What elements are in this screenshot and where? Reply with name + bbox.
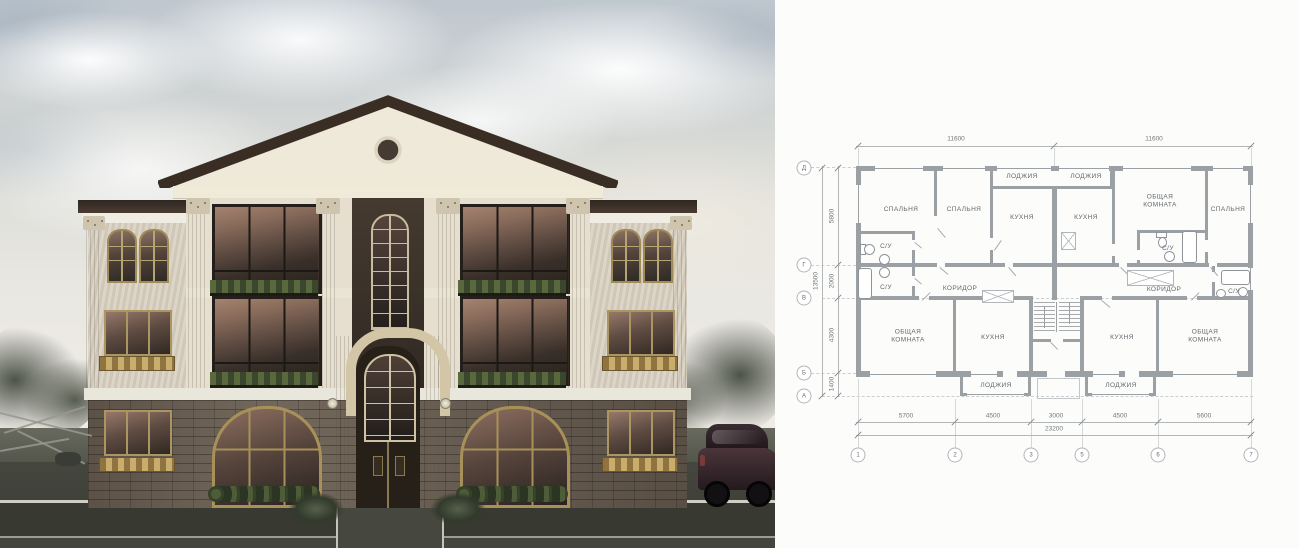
dim-label: 4500 xyxy=(986,413,1000,420)
grid-bubble-col-6: 6 xyxy=(1151,448,1166,463)
bathtub xyxy=(1182,231,1197,263)
door-glass xyxy=(395,456,405,476)
window-line xyxy=(1092,394,1149,395)
grid-bubble-row-b: Б xyxy=(797,366,812,381)
dim-label: 5800 xyxy=(829,209,836,223)
pilaster-capital xyxy=(83,216,105,230)
door-leaf xyxy=(914,278,922,285)
door-opening xyxy=(934,216,937,228)
extension-line xyxy=(1054,148,1055,166)
car-taillight xyxy=(700,455,705,466)
entrance-opening xyxy=(1047,371,1065,377)
door-leaf xyxy=(937,228,945,238)
stone-window xyxy=(104,410,172,456)
wall-segment xyxy=(1052,186,1057,300)
wall-segment xyxy=(1217,263,1253,267)
extension-line xyxy=(1251,148,1252,166)
window-line xyxy=(1173,374,1237,375)
dim-label: 1400 xyxy=(829,377,836,391)
wing-roof-right xyxy=(579,200,697,213)
room-label-kitchen: КУХНЯ xyxy=(1010,214,1034,222)
extension-line xyxy=(955,399,956,448)
dim-label: 11600 xyxy=(947,136,965,143)
bathtub xyxy=(858,268,872,299)
door-opening xyxy=(1205,240,1208,252)
window-line xyxy=(870,374,936,375)
pilaster-capital xyxy=(566,198,590,214)
room-label-loggia: ЛОДЖИЯ xyxy=(1105,382,1136,390)
wall-segment xyxy=(1057,263,1119,267)
door-leaf xyxy=(994,240,1002,250)
room-label-bathroom: С/У xyxy=(880,284,892,292)
grid-line-d xyxy=(811,167,856,168)
door-leaf xyxy=(1101,300,1110,308)
washbasin xyxy=(879,267,890,278)
bush xyxy=(430,492,486,526)
entrance-porch xyxy=(1037,378,1080,399)
room-label-living-room: ОБЩАЯ КОМНАТА xyxy=(1180,329,1230,346)
room-label-loggia: ЛОДЖИЯ xyxy=(1070,173,1101,181)
dimension-line xyxy=(822,166,823,397)
room-label-living-room: ОБЩАЯ КОМНАТА xyxy=(1135,194,1185,211)
grid-bubble-col-5: 5 xyxy=(1075,448,1090,463)
window-line xyxy=(875,168,923,169)
room-label-bedroom: СПАЛЬНЯ xyxy=(1211,206,1246,214)
door-opening xyxy=(1137,250,1140,260)
room-label-loggia: ЛОДЖИЯ xyxy=(1006,173,1037,181)
room-label-bathroom: С/У xyxy=(880,243,892,251)
floor-plan: СПАЛЬНЯ СПАЛЬНЯ ЛОДЖИЯ КУХНЯ ЛОДЖИЯ КУХН… xyxy=(775,0,1299,548)
car-wheel xyxy=(704,481,730,507)
room-label-kitchen: КУХНЯ xyxy=(981,334,1005,342)
architectural-presentation: СПАЛЬНЯ СПАЛЬНЯ ЛОДЖИЯ КУХНЯ ЛОДЖИЯ КУХН… xyxy=(0,0,1299,548)
wing-window xyxy=(607,310,675,356)
extension-line xyxy=(1158,399,1159,448)
wall-segment xyxy=(1013,263,1054,267)
window-line xyxy=(997,168,1051,169)
window-planter xyxy=(210,372,318,388)
grid-bubble-col-3: 3 xyxy=(1024,448,1039,463)
grid-bubble-col-1: 1 xyxy=(851,448,866,463)
wall-segment xyxy=(1156,300,1159,371)
door-leaf xyxy=(1008,267,1016,276)
wall-segment xyxy=(856,231,915,234)
room-label-kitchen: КУХНЯ xyxy=(1074,214,1098,222)
stair-arrow xyxy=(1044,306,1045,328)
dim-label: 4500 xyxy=(1113,413,1127,420)
wall-segment xyxy=(953,300,956,371)
dim-label: 13500 xyxy=(813,272,820,290)
room-label-bathroom: С/У xyxy=(1228,288,1240,296)
stair-tower-window xyxy=(371,214,409,330)
arched-window xyxy=(139,229,169,283)
grid-bubble-col-7: 7 xyxy=(1244,448,1259,463)
window-line xyxy=(943,168,985,169)
wall-segment xyxy=(856,263,937,267)
wall-segment xyxy=(992,186,1054,189)
grid-line-g xyxy=(811,265,856,266)
bathtub xyxy=(1221,270,1250,285)
wall-segment xyxy=(1112,296,1187,300)
wall-segment xyxy=(990,166,993,266)
bush xyxy=(288,492,344,526)
wing-window xyxy=(104,310,172,356)
wall-segment xyxy=(945,263,1005,267)
room-label-bathroom: С/У xyxy=(1162,245,1174,253)
extension-line xyxy=(858,148,859,166)
dim-label: 5700 xyxy=(899,413,913,420)
wall-segment xyxy=(1057,186,1113,189)
wall-lamp-right xyxy=(440,398,451,409)
room-label-corridor: КОРИДОР xyxy=(943,285,977,293)
wall-lamp-left xyxy=(327,398,338,409)
dim-label: 4300 xyxy=(829,328,836,342)
dim-label: 11600 xyxy=(1145,136,1163,143)
room-label-loggia: ЛОДЖИЯ xyxy=(980,382,1011,390)
pilaster-capital xyxy=(670,216,692,230)
extension-line xyxy=(858,379,859,448)
shaft-box xyxy=(1127,270,1174,286)
grid-bubble-row-d: Д xyxy=(797,161,812,176)
door-opening xyxy=(1112,244,1115,256)
dimension-line xyxy=(838,166,839,397)
shaft-box xyxy=(982,290,1014,303)
room-label-bedroom: СПАЛЬНЯ xyxy=(947,206,982,214)
window-line xyxy=(971,374,997,375)
grid-bubble-col-2: 2 xyxy=(948,448,963,463)
grid-bubble-row-a: А xyxy=(797,389,812,404)
room-label-kitchen: КУХНЯ xyxy=(1110,334,1134,342)
window-line xyxy=(1250,268,1251,290)
wall-segment xyxy=(1137,230,1140,266)
car-window xyxy=(712,430,762,444)
arched-window xyxy=(107,229,137,283)
window-planter xyxy=(458,280,566,296)
ornament-plaque xyxy=(99,356,175,371)
window-line xyxy=(1123,168,1191,169)
toilet-bowl xyxy=(1216,289,1226,298)
washbasin xyxy=(879,254,890,265)
window-line xyxy=(1250,185,1251,223)
window-line xyxy=(967,394,1024,395)
door-opening xyxy=(1003,371,1017,377)
car-wheel xyxy=(746,481,772,507)
toilet-bowl xyxy=(864,244,875,255)
grid-bubble-row-g: Г xyxy=(797,258,812,273)
window-line xyxy=(1213,168,1243,169)
stone-window xyxy=(607,410,675,456)
ornament-plaque xyxy=(602,356,678,371)
wall-segment xyxy=(1080,300,1084,377)
window-line xyxy=(858,185,859,223)
front-walk xyxy=(336,508,444,548)
pilaster-capital xyxy=(316,198,340,214)
door-opening xyxy=(1051,339,1063,342)
extension-line xyxy=(1251,379,1252,448)
dimension-line xyxy=(856,422,1253,423)
arched-window xyxy=(611,229,641,283)
ornament-plaque xyxy=(99,457,175,472)
pediment-medallion xyxy=(376,138,400,162)
window-line xyxy=(1093,374,1119,375)
shaft-box xyxy=(1061,232,1076,250)
dim-label: 23200 xyxy=(1045,426,1063,433)
extension-line xyxy=(1082,399,1083,448)
door-opening xyxy=(990,238,993,250)
door-leaf xyxy=(914,242,922,249)
dim-label: 5600 xyxy=(1197,413,1211,420)
dim-label: 2000 xyxy=(829,274,836,288)
entablature xyxy=(173,186,603,198)
extension-line xyxy=(1031,399,1032,448)
room-label-living-room: ОБЩАЯ КОМНАТА xyxy=(883,329,933,346)
grid-line-b xyxy=(811,373,856,374)
pediment xyxy=(158,94,618,188)
pilaster xyxy=(188,198,208,398)
window-planter xyxy=(210,280,318,296)
stair-arrow xyxy=(1069,302,1070,324)
pilaster-capital xyxy=(436,198,460,214)
window-planter xyxy=(458,372,566,388)
room-label-corridor: КОРИДОР xyxy=(1147,286,1181,294)
pilaster xyxy=(318,198,338,398)
building-render xyxy=(0,0,775,548)
grid-bubble-row-v: В xyxy=(797,291,812,306)
stair-divider xyxy=(1056,302,1057,332)
dim-label: 3000 xyxy=(1049,413,1063,420)
pilaster xyxy=(568,198,588,398)
room-label-bedroom: СПАЛЬНЯ xyxy=(884,206,919,214)
wing-roof-left xyxy=(78,200,196,213)
door-leaf xyxy=(939,267,948,275)
door-glass xyxy=(373,456,383,476)
door-opening xyxy=(1125,371,1139,377)
door-leaf xyxy=(1050,342,1058,350)
ornament-plaque xyxy=(602,457,678,472)
pilaster-capital xyxy=(186,198,210,214)
wall-segment xyxy=(1137,230,1208,233)
arched-window xyxy=(643,229,673,283)
entrance-transom-window xyxy=(364,354,416,442)
window-line xyxy=(1059,168,1109,169)
scaffold-object xyxy=(55,452,81,466)
dimension-line xyxy=(856,435,1253,436)
